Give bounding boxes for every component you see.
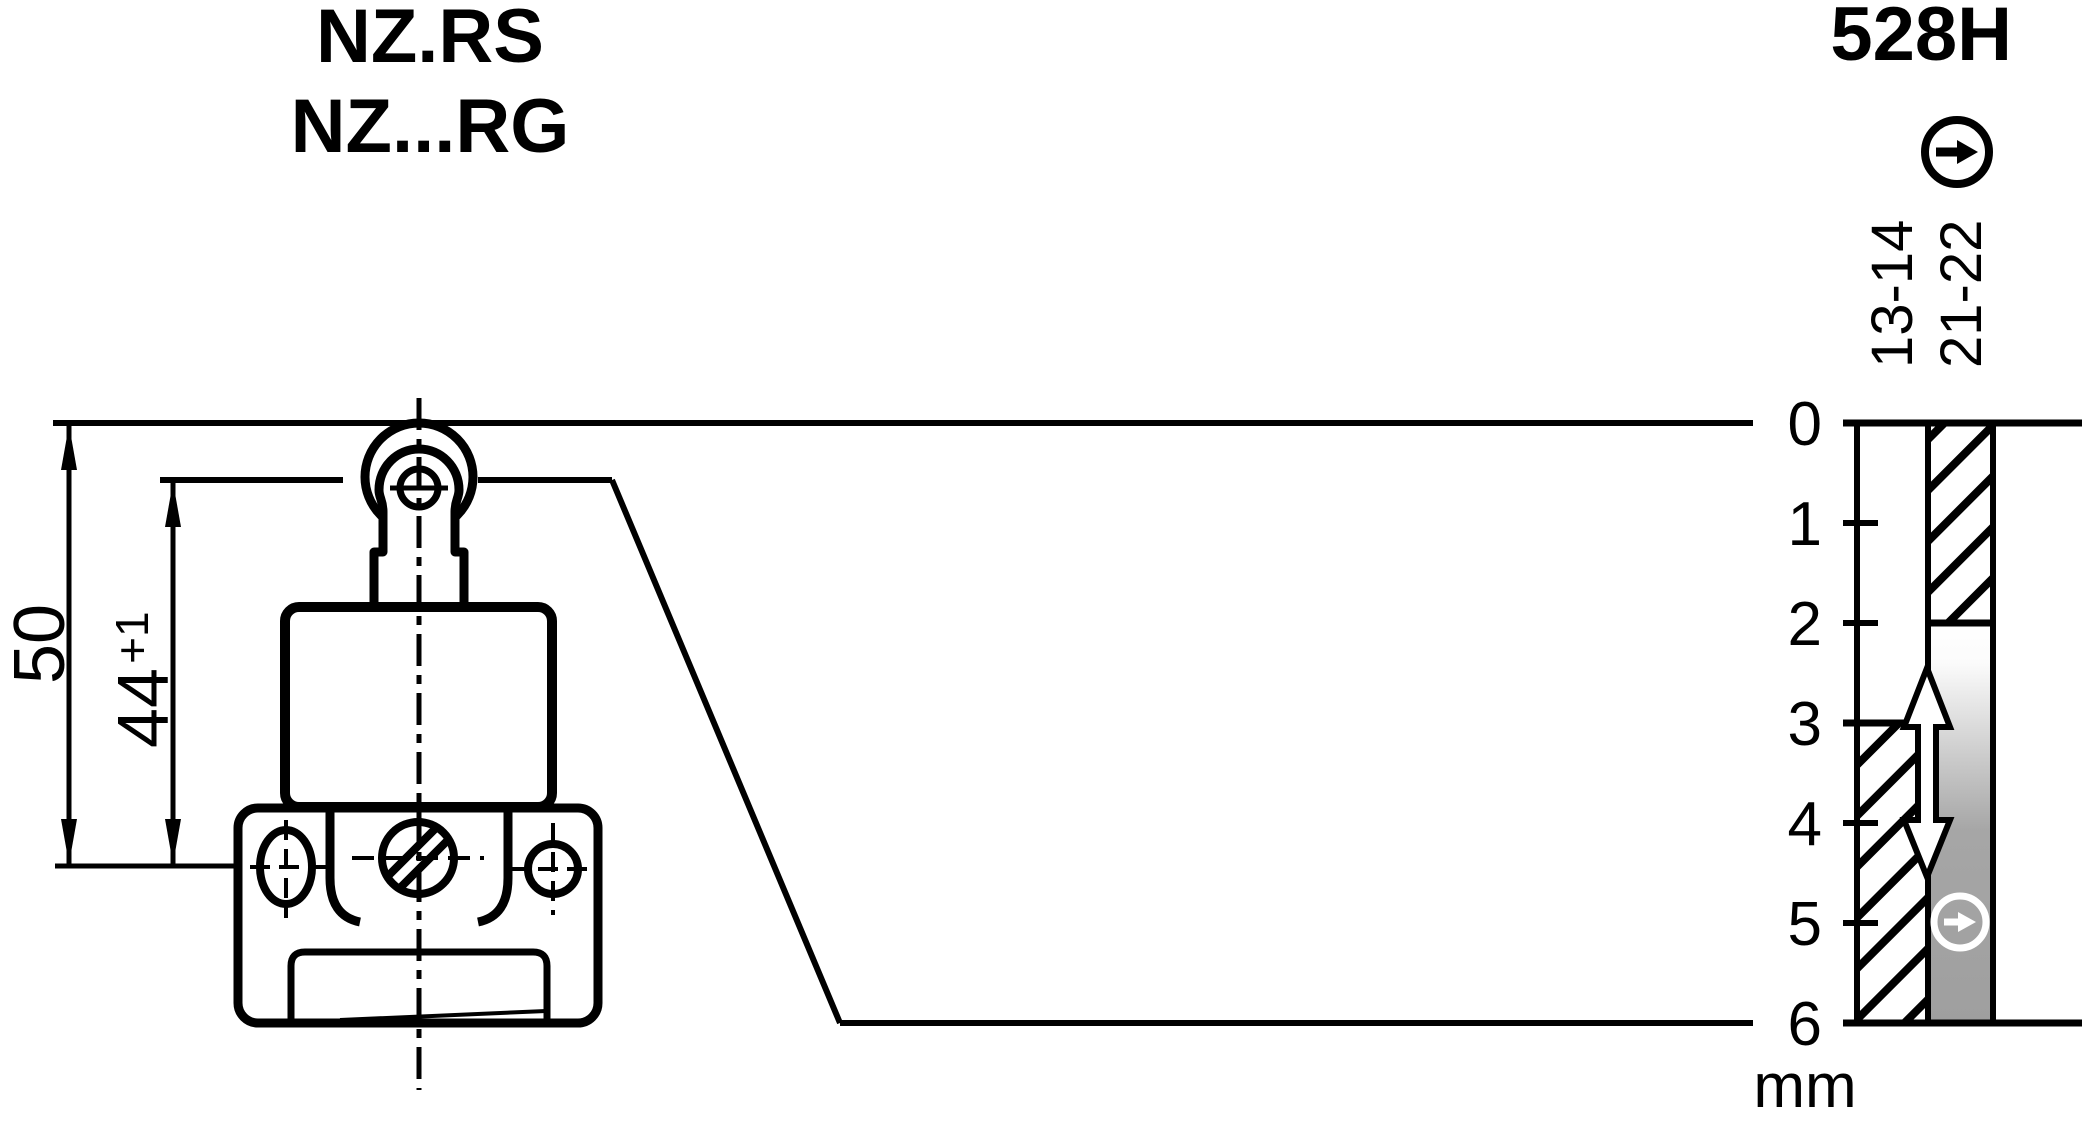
contact-21-22-closed-band — [1931, 426, 1990, 623]
limit-switch-drawing: 50 44+1 — [0, 398, 1753, 1090]
arrowhead-up-icon — [61, 425, 77, 470]
contact-label-13-14: 13-14 — [1860, 220, 1925, 368]
arrowhead-down-icon — [61, 819, 77, 864]
dimension-44-value: 44 — [104, 668, 184, 748]
contact-label-21-22: 21-22 — [1929, 220, 1994, 368]
tick-label-6: 6 — [1788, 990, 1822, 1059]
arrow-right-circle-icon — [1925, 120, 1989, 184]
product-series-title-line2: NZ...RG — [291, 84, 570, 169]
tick-label-1: 1 — [1788, 490, 1822, 559]
tick-label-4: 4 — [1788, 790, 1822, 859]
limit-switch-travel-diagram: NZ.RS NZ...RG 528H 50 44+1 — [0, 0, 2082, 1122]
dimension-44: 44+1 — [104, 482, 184, 864]
travel-diagram: 13-14 21-22 0 1 2 3 4 5 6 mm — [840, 220, 2082, 1121]
dimension-50: 50 — [0, 425, 80, 864]
dimension-50-label: 50 — [0, 604, 80, 684]
dimension-44-tolerance: +1 — [106, 611, 158, 663]
arrowhead-down-icon — [165, 819, 181, 864]
product-series-title-line1: NZ.RS — [316, 0, 544, 79]
travel-scale: 0 1 2 3 4 5 6 mm — [1753, 390, 1856, 1121]
tick-label-0: 0 — [1788, 390, 1822, 459]
titles: NZ.RS NZ...RG 528H — [291, 0, 2012, 169]
arrowhead-up-icon — [165, 482, 181, 527]
tick-label-2: 2 — [1788, 590, 1822, 659]
diagram-code-label: 528H — [1830, 0, 2012, 77]
tick-label-5: 5 — [1788, 890, 1822, 959]
travel-ramp-diagonal — [612, 480, 840, 1023]
technical-drawing-page: NZ.RS NZ...RG 528H 50 44+1 — [0, 0, 2082, 1122]
tick-label-3: 3 — [1788, 690, 1822, 759]
unit-label: mm — [1753, 1052, 1856, 1121]
